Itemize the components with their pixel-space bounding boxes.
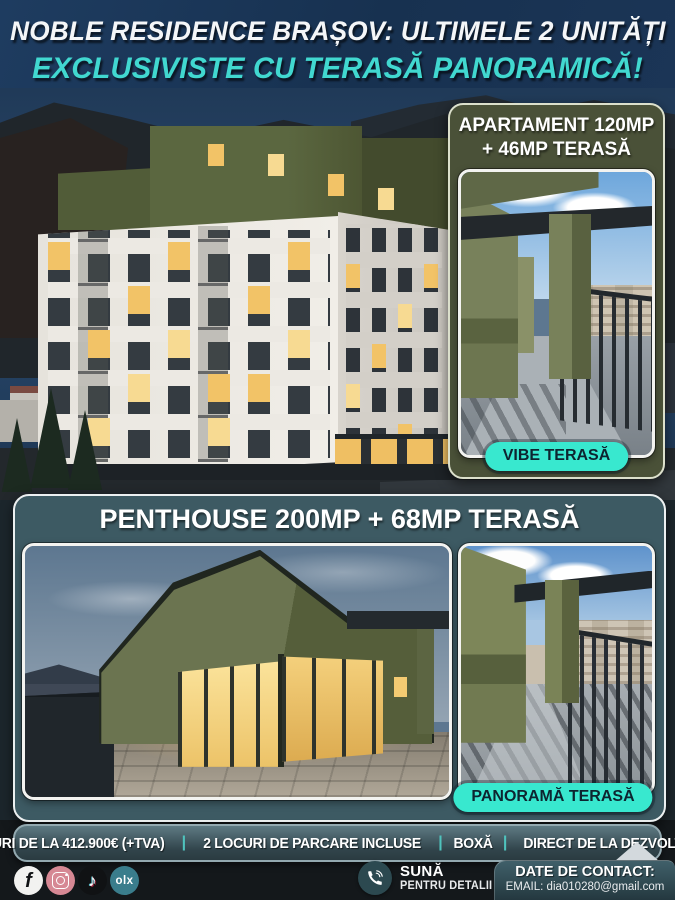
roof-wing <box>347 611 449 629</box>
diamond-top <box>615 842 659 861</box>
green-wall <box>461 546 526 743</box>
green-pillar-main <box>545 580 579 703</box>
call-title: SUNĂ <box>400 863 497 880</box>
instagram-icon[interactable] <box>46 866 75 895</box>
building-facade-side <box>338 212 450 470</box>
apartment-card: APARTAMENT 120MP + 46MP TERASĂ VIBE TERA… <box>448 103 665 479</box>
vibe-terasa-badge: VIBE TERASĂ <box>485 442 629 471</box>
glowing-glass-wall-left <box>178 661 280 766</box>
terrace-railing <box>568 628 652 795</box>
building-top-olive-main <box>150 126 362 230</box>
building-top-olive-side <box>362 138 450 230</box>
price-item: PREȚURI DE LA 412.900€ (+TVA) <box>0 835 165 852</box>
separator: | <box>503 834 507 852</box>
green-column <box>417 629 434 734</box>
penthouse-panorama-photo <box>458 543 655 795</box>
separator: | <box>182 834 186 852</box>
lit-windows-side <box>346 264 360 288</box>
balcony-column <box>198 226 228 462</box>
penthouse-terrace-photo <box>22 543 452 800</box>
glowing-glass-wall-right <box>282 656 384 761</box>
penthouse-title: PENTHOUSE 200MP + 68MP TERASĂ <box>15 504 664 535</box>
panorama-terasa-badge: PANORAMĂ TERASĂ <box>453 783 652 812</box>
facebook-icon[interactable]: f <box>14 866 43 895</box>
lit-window <box>394 677 407 697</box>
pricing-bar: PREȚURI DE LA 412.900€ (+TVA) | 2 LOCURI… <box>13 824 662 862</box>
green-pillar-far <box>518 257 533 353</box>
poster-root: NOBLE RESIDENCE BRAȘOV: ULTIMELE 2 UNITĂ… <box>0 0 675 900</box>
contact-email[interactable]: EMAIL: dia010280@gmail.com <box>495 881 675 893</box>
olx-icon[interactable]: olx <box>110 866 139 895</box>
lit-windows-front <box>48 242 70 270</box>
headline-line1: NOBLE RESIDENCE BRAȘOV: ULTIMELE 2 UNITĂ… <box>10 16 665 47</box>
call-cta[interactable]: SUNĂ PENTRU DETALII <box>358 861 497 895</box>
apartment-terrace-photo <box>458 169 655 458</box>
phone-icon <box>358 861 392 895</box>
contact-box[interactable]: DATE DE CONTACT: EMAIL: dia010280@gmail.… <box>494 860 675 900</box>
storage-item: BOXĂ <box>453 835 492 852</box>
parking-item: 2 LOCURI DE PARCARE INCLUSE <box>203 835 421 852</box>
window-grid <box>346 224 442 452</box>
separator: | <box>438 834 442 852</box>
call-subtitle: PENTRU DETALII <box>400 880 492 893</box>
headline-line2: EXCLUSIVISTE CU TERASĂ PANORAMICĂ! <box>10 52 665 86</box>
green-pillar-main <box>549 214 591 378</box>
lit-windows-top <box>208 144 224 166</box>
camera-glyph <box>52 872 69 889</box>
apartment-title-line1: APARTAMENT 120MP <box>450 115 663 137</box>
tiktok-icon[interactable]: ♪ <box>78 866 107 895</box>
apartment-title-line2: + 46MP TERASĂ <box>450 139 663 161</box>
contact-title: DATE DE CONTACT: <box>495 864 675 880</box>
background-house <box>0 400 42 442</box>
social-icons: f ♪ olx <box>14 866 140 895</box>
penthouse-card: PENTHOUSE 200MP + 68MP TERASĂ <box>13 494 666 822</box>
call-text: SUNĂ PENTRU DETALII <box>400 863 497 893</box>
